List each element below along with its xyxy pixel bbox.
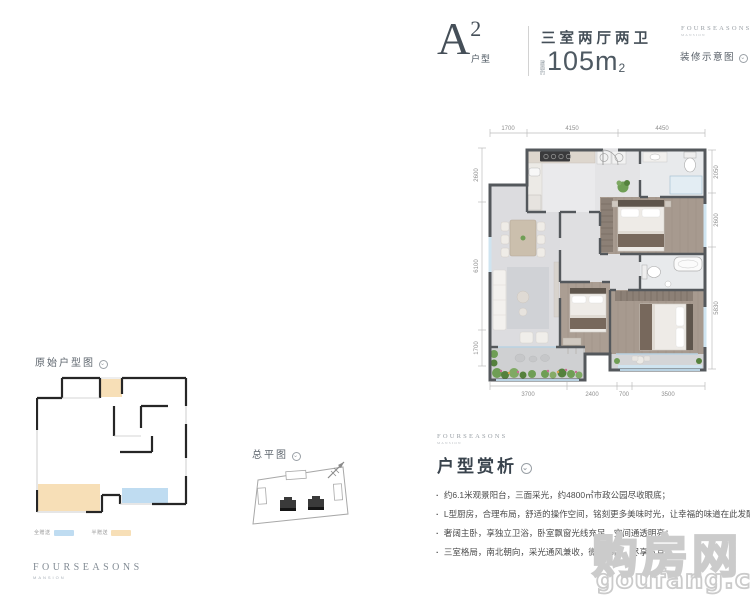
shower-area (670, 176, 702, 194)
dim-bottom-4: 3500 (661, 392, 675, 398)
dim-left-1: 2600 (474, 168, 480, 182)
bed-headboard (686, 304, 693, 350)
circle-chevron-icon: ⌄ (739, 54, 748, 63)
main-floor-plan: 1700 4150 4450 2600 6100 1700 2050 2600 … (452, 112, 748, 404)
half-gift-area (100, 379, 122, 397)
legend-swatch-orange (111, 530, 131, 536)
dim-bottom-3: 700 (619, 392, 630, 398)
dim-left-2: 6100 (474, 259, 480, 273)
watermark-en: goufang.com (596, 565, 750, 595)
header-divider (528, 26, 529, 76)
half-gift-balcony (38, 484, 100, 511)
original-plan-title-text: 原始户型图 (35, 358, 95, 369)
legend-label: 半赠送 (92, 529, 109, 536)
brand-top-block: FOURSEASONS MANSION (681, 25, 750, 37)
compass-arrow-icon (328, 462, 344, 478)
coffee-table (517, 291, 529, 303)
original-floor-plan (36, 372, 196, 520)
area-block: 建面约 105m2 (539, 48, 625, 75)
toilet-icon (685, 158, 696, 172)
bullet-item: 三室格局，南北朝向，采光通风兼收，微风拂面，尽享写意； (436, 543, 748, 562)
brand-name-analysis: FOURSEASONS (437, 433, 507, 440)
deco-note: 装修示意图⌄ (680, 49, 748, 63)
analysis-title-text: 户型赏析 (437, 457, 517, 476)
legend-item-full-gift: 全赠送 (34, 529, 74, 536)
site-plan (246, 458, 352, 530)
rooms-spec: 三室两厅两卫 (541, 27, 652, 48)
bed-headboard (618, 200, 664, 207)
area-sup: 2 (619, 61, 626, 75)
legend-label: 全赠送 (34, 529, 51, 536)
dim-left-3: 1700 (474, 341, 480, 355)
brand-name-top: FOURSEASONS (681, 25, 750, 32)
bullet-item: 奢阔主卧，享独立卫浴，卧室飘窗光线充足，空间通透明亮； (436, 524, 748, 543)
dim-right-3: 5830 (714, 301, 720, 315)
plan-legend: 全赠送 半赠送 (34, 529, 131, 536)
dim-top-1: 1700 (501, 126, 515, 132)
dim-bottom-1: 3700 (521, 392, 535, 398)
circle-chevron-icon: ⌄ (521, 463, 532, 474)
unit-letter: A (437, 13, 470, 64)
bedroom-2 (601, 198, 671, 252)
bullet-item: L型厨房，合理布局，舒适的操作空间，铭刻更多美味时光，让幸福的味道在此发酵； (436, 505, 748, 524)
plan-body (490, 150, 705, 380)
legend-item-half-gift: 半赠送 (92, 529, 132, 536)
brand-sub-analysis: MANSION (437, 441, 507, 445)
unit-label: 户型 (471, 52, 491, 65)
area-value: 105m (547, 48, 619, 75)
toilet-icon (648, 267, 661, 278)
unit-sup: 2 (470, 16, 481, 41)
deco-note-text: 装修示意图 (680, 52, 735, 63)
brand-name-bottom: FOURSEASONS (33, 562, 143, 573)
dim-top-2: 4150 (565, 126, 579, 132)
circle-chevron-icon: ⌄ (99, 360, 108, 369)
dim-right-1: 2050 (714, 165, 720, 179)
highlighted-buildings (280, 496, 324, 511)
dim-right-2: 2600 (714, 213, 720, 227)
floorplan-poster: A2 户型 三室两厅两卫 建面约 105m2 FOURSEASONS MANSI… (0, 0, 750, 600)
brand-sub-top: MANSION (681, 33, 750, 37)
analysis-title: 户型赏析⌄ (437, 452, 532, 477)
area-prefix: 建面约 (539, 60, 545, 75)
bullet-item: 约6.1米观景阳台，三面采光，约4800㎡市政公园尽收眼底； (436, 486, 748, 505)
brand-bottom-block: FOURSEASONS MANSION (33, 562, 143, 580)
legend-swatch-blue (54, 530, 74, 536)
dim-top-3: 4450 (655, 126, 669, 132)
brand-sub-bottom: MANSION (33, 575, 143, 580)
tv-console (554, 262, 559, 317)
original-plan-title: 原始户型图⌄ (35, 354, 108, 369)
bed-headboard (570, 288, 606, 294)
full-gift-area (122, 488, 168, 503)
analysis-brand-block: FOURSEASONS MANSION (437, 433, 507, 445)
dim-bottom-2: 2400 (585, 392, 599, 398)
analysis-bullets: 约6.1米观景阳台，三面采光，约4800㎡市政公园尽收眼底； L型厨房，合理布局… (436, 486, 748, 562)
